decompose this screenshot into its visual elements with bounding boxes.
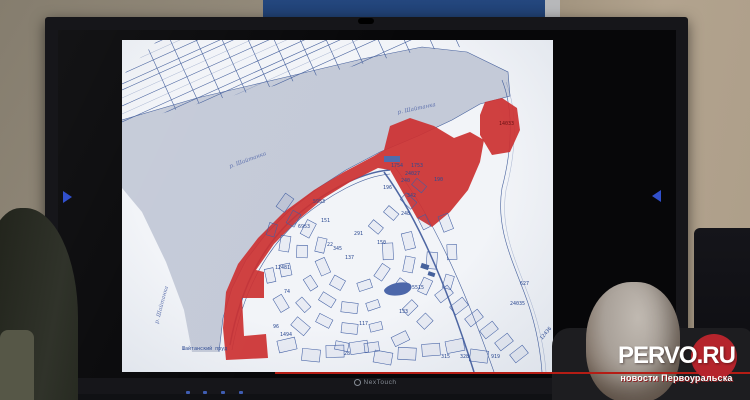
meeting-room-photo: 5953695317541753240272401901963422481512… (0, 0, 750, 400)
svg-text:133: 133 (399, 309, 408, 315)
svg-text:137: 137 (345, 255, 354, 261)
svg-text:6953: 6953 (298, 224, 310, 230)
svg-text:1754: 1754 (391, 163, 403, 169)
panel-camera (358, 18, 374, 24)
person-left-arm (0, 330, 34, 400)
svg-text:12436: 12436 (539, 326, 553, 341)
svg-text:74: 74 (284, 289, 290, 295)
building (428, 271, 436, 277)
svg-text:24035: 24035 (510, 301, 525, 307)
svg-text:190: 190 (434, 177, 443, 183)
brand-name: NexTouch (364, 379, 397, 386)
watermark-title: PERVO (618, 342, 697, 370)
sidebar-toggle-left-icon[interactable] (63, 191, 72, 203)
svg-text:919: 919 (491, 354, 500, 360)
svg-text:5953: 5953 (313, 199, 325, 205)
svg-text:315: 315 (441, 354, 450, 360)
brand-circle-icon (354, 379, 361, 386)
svg-text:151: 151 (321, 218, 330, 224)
sidebar-toggle-right-icon[interactable] (652, 190, 661, 202)
cadastral-map: 5953695317541753240272401901963422481512… (122, 40, 553, 372)
svg-text:5515: 5515 (412, 285, 424, 291)
svg-text:117: 117 (359, 321, 368, 327)
svg-text:28: 28 (344, 351, 350, 357)
svg-text:240: 240 (401, 178, 410, 184)
svg-text:627: 627 (520, 281, 529, 287)
svg-text:Шайтанский пруд: Шайтанский пруд (182, 346, 227, 352)
svg-text:291: 291 (354, 231, 363, 237)
pervo-watermark: PERVO .RU новости Первоуральска (618, 336, 735, 383)
watermark-title-ru: .RU (697, 342, 735, 370)
svg-text:248: 248 (401, 211, 410, 217)
building (384, 156, 400, 162)
svg-text:14033: 14033 (499, 121, 514, 127)
svg-text:1494: 1494 (280, 332, 292, 338)
svg-text:1753: 1753 (411, 163, 423, 169)
svg-text:196: 196 (383, 185, 392, 191)
svg-text:24027: 24027 (405, 171, 420, 177)
watermark-subtitle: новости Первоуральска (618, 373, 735, 383)
svg-text:р. Шайтанка: р. Шайтанка (154, 285, 170, 324)
pond (384, 282, 412, 295)
svg-text:328: 328 (460, 354, 469, 360)
svg-text:96: 96 (273, 324, 279, 330)
map-document-page: 5953695317541753240272401901963422481512… (122, 40, 553, 372)
svg-text:150: 150 (377, 240, 386, 246)
svg-text:342: 342 (407, 193, 416, 199)
svg-text:12481: 12481 (275, 265, 290, 271)
panel-brand-logo: NexTouch (330, 379, 420, 386)
svg-text:345: 345 (333, 246, 342, 252)
